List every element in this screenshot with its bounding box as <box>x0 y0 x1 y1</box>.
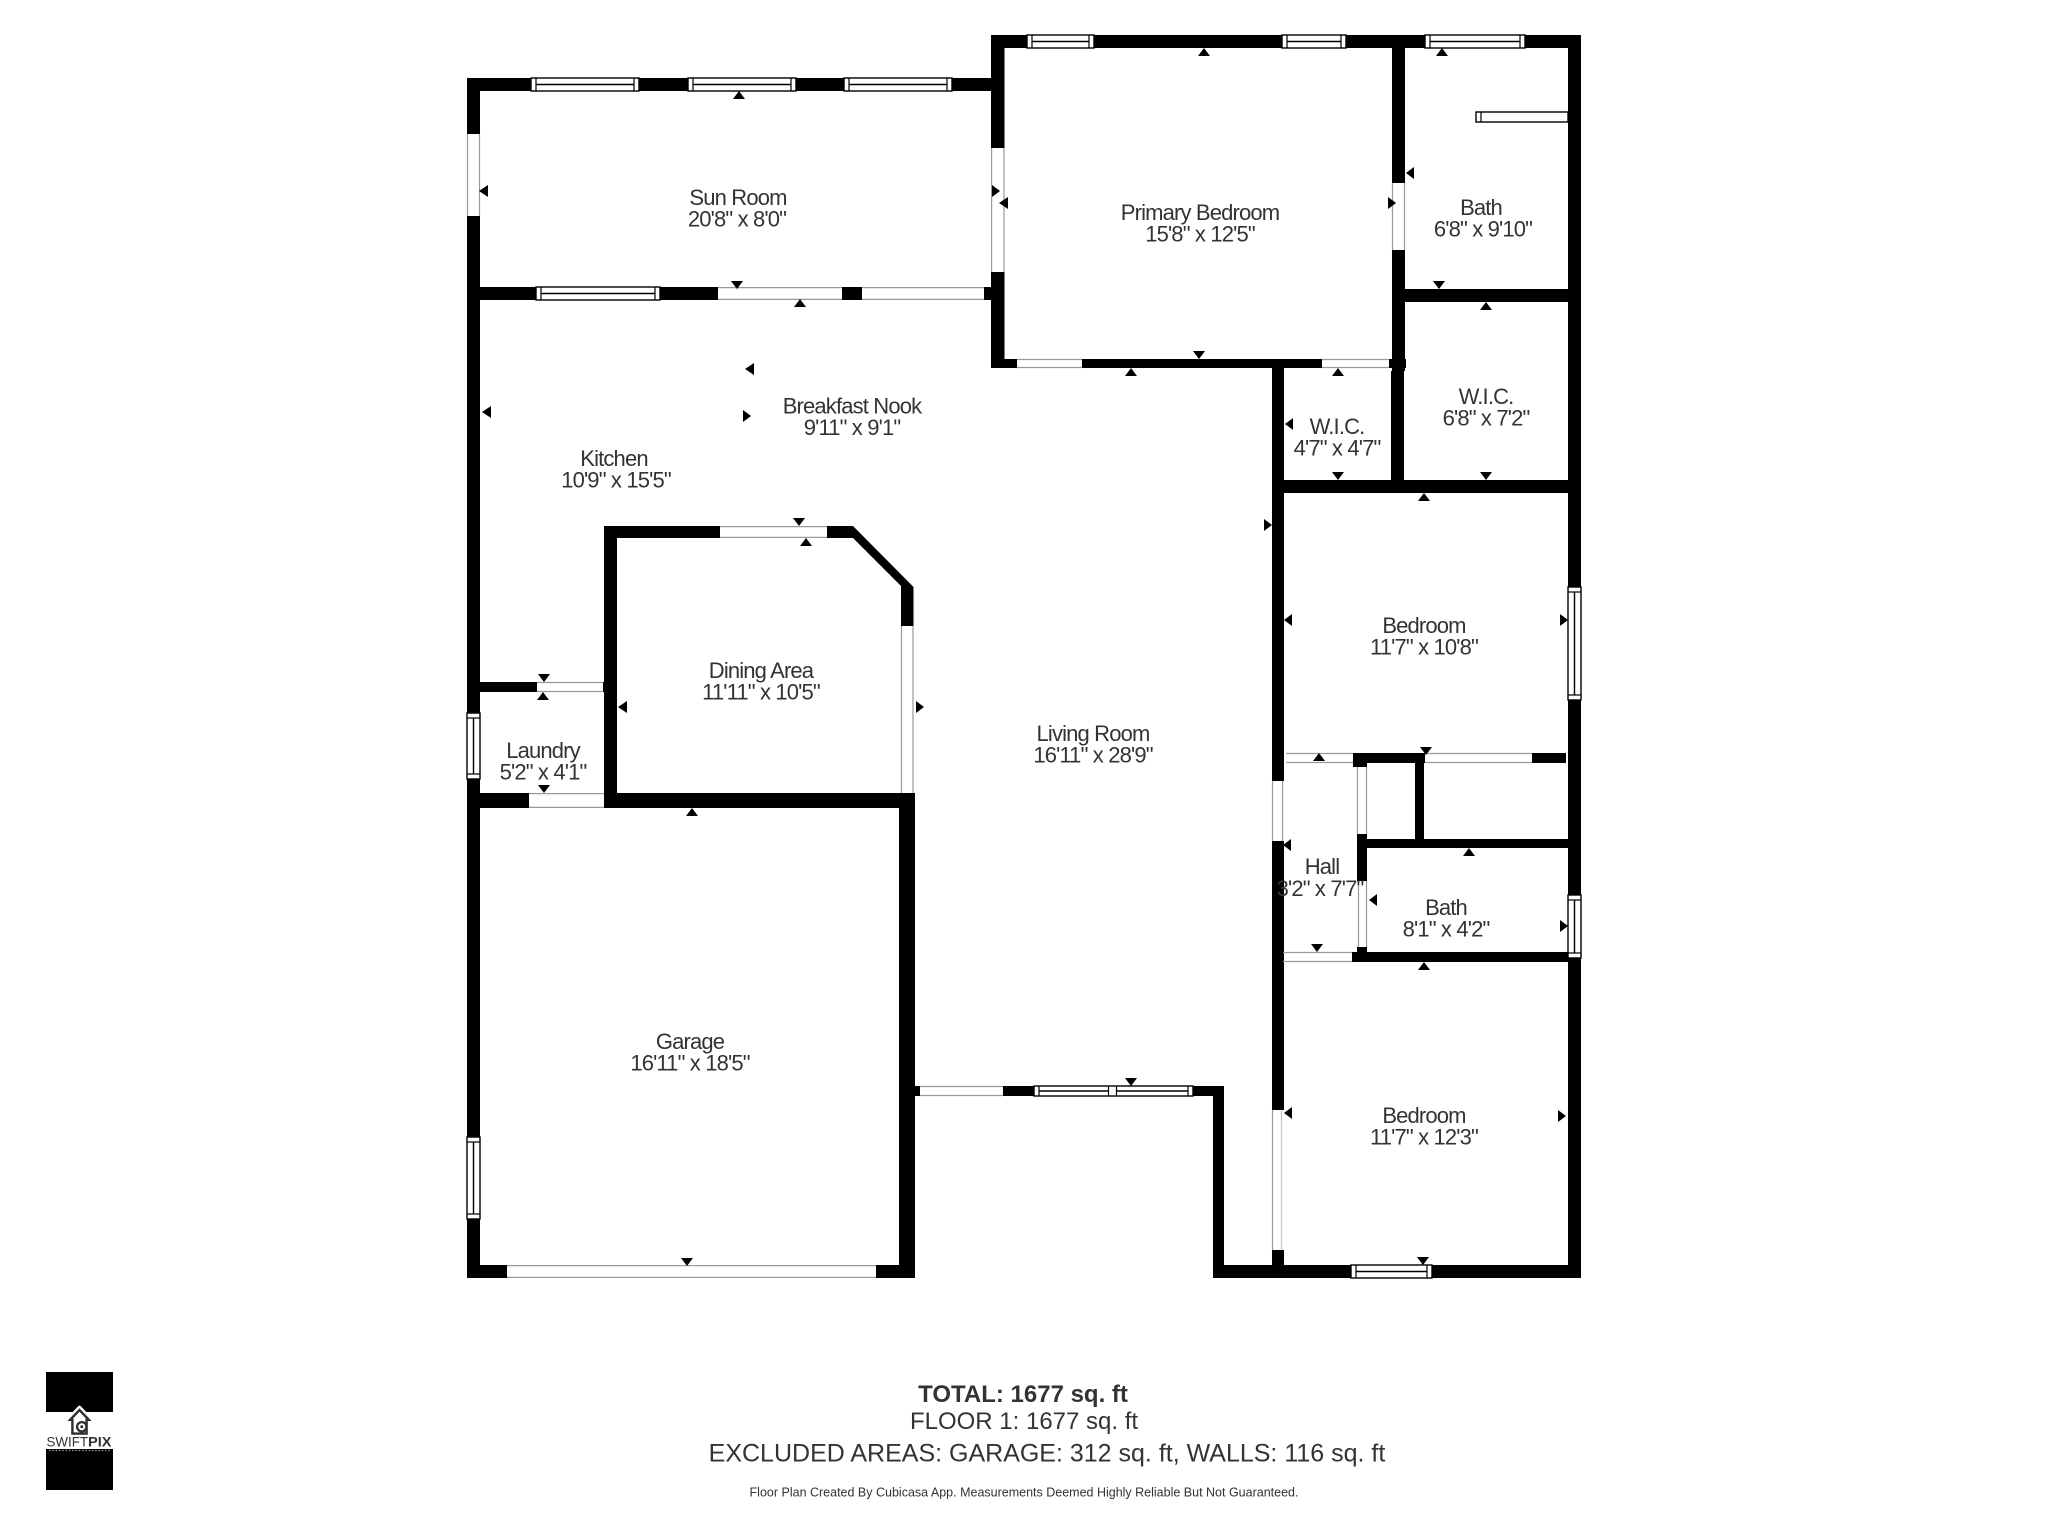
svg-text:6'8" x 9'10": 6'8" x 9'10" <box>1434 217 1532 242</box>
svg-text:TOTAL: 1677 sq. ft: TOTAL: 1677 sq. ft <box>918 1381 1128 1408</box>
svg-text:Floor Plan Created By Cubicasa: Floor Plan Created By Cubicasa App. Meas… <box>750 1486 1299 1500</box>
svg-text:EXCLUDED AREAS: GARAGE: 312 sq: EXCLUDED AREAS: GARAGE: 312 sq. ft, WALL… <box>709 1440 1386 1468</box>
svg-text:10'9" x 15'5": 10'9" x 15'5" <box>561 468 671 493</box>
svg-text:9'11" x 9'1": 9'11" x 9'1" <box>804 415 901 440</box>
svg-text:4'7" x 4'7": 4'7" x 4'7" <box>1294 436 1381 461</box>
svg-text:FLOOR 1: 1677 sq. ft: FLOOR 1: 1677 sq. ft <box>910 1408 1138 1435</box>
svg-text:3'2" x 7'7": 3'2" x 7'7" <box>1277 876 1364 901</box>
svg-text:11'7" x 12'3": 11'7" x 12'3" <box>1370 1125 1478 1150</box>
svg-text:20'8" x 8'0": 20'8" x 8'0" <box>688 207 786 232</box>
svg-text:8'1" x 4'2": 8'1" x 4'2" <box>1403 917 1490 942</box>
svg-text:6'8" x 7'2": 6'8" x 7'2" <box>1443 406 1530 431</box>
svg-text:15'8" x 12'5": 15'8" x 12'5" <box>1145 222 1255 247</box>
svg-text:PIX: PIX <box>88 1435 112 1450</box>
svg-text:11'11" x 10'5": 11'11" x 10'5" <box>702 680 820 705</box>
svg-text:16'11" x 28'9": 16'11" x 28'9" <box>1033 743 1152 768</box>
svg-text:SWIFT: SWIFT <box>47 1435 89 1450</box>
svg-text:11'7" x 10'8": 11'7" x 10'8" <box>1370 635 1478 660</box>
svg-text:5'2" x 4'1": 5'2" x 4'1" <box>500 760 587 785</box>
svg-text:16'11" x 18'5": 16'11" x 18'5" <box>630 1051 749 1076</box>
